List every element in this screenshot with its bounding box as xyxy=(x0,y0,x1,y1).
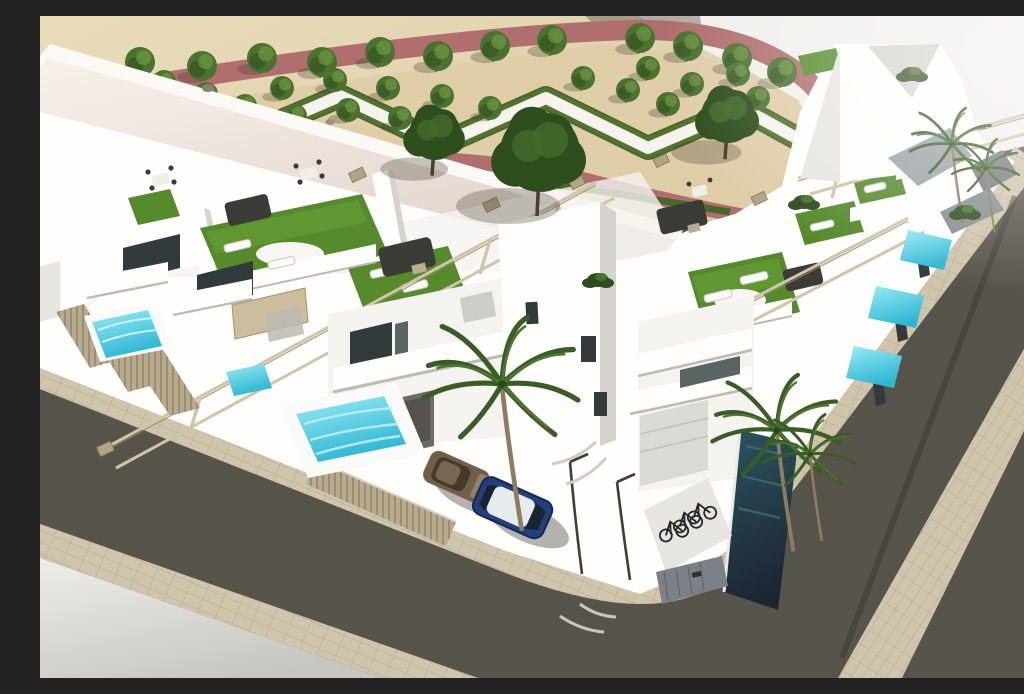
roof-vent xyxy=(202,84,214,92)
small-window xyxy=(525,302,538,325)
scene-canvas xyxy=(40,16,1024,678)
small-window xyxy=(581,336,596,362)
roof-vent xyxy=(326,119,335,125)
small-window xyxy=(594,392,607,416)
sun-glare xyxy=(664,16,1024,296)
architectural-render xyxy=(40,16,1024,678)
